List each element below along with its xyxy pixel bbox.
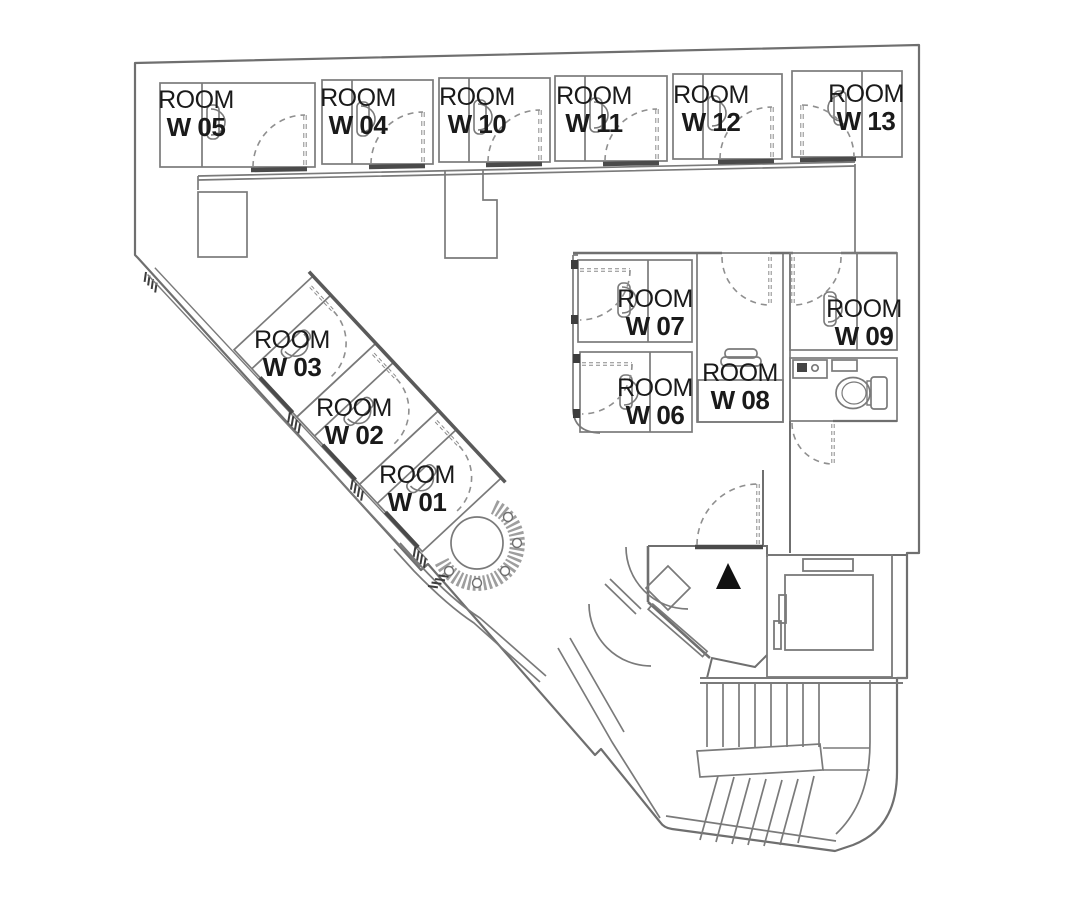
room-label-w06: ROOMW 06 (617, 376, 693, 428)
room-label-w08: ROOMW 08 (702, 361, 778, 413)
elevator-cab (785, 575, 873, 650)
entrance-door-arc-right (589, 604, 651, 666)
top-rooms (160, 71, 902, 167)
elevator-counterweight (803, 559, 853, 571)
shelf-icon (832, 360, 857, 371)
toilet-room (790, 358, 897, 421)
spiral-planter-icon (428, 507, 522, 592)
diagonal-block-front-wall (309, 272, 505, 483)
room-label-w01: ROOMW 01 (379, 463, 455, 515)
corridor-door-bar (605, 579, 641, 614)
stair-landing (697, 744, 823, 777)
upper-corridor-walls (140, 162, 855, 293)
room-label-w13: ROOMW 13 (828, 82, 904, 134)
room-label-w02: ROOMW 02 (316, 396, 392, 448)
toilet-door-arc (792, 423, 833, 464)
room-label-w05: ROOMW 05 (158, 88, 234, 140)
lobby-walls (648, 421, 907, 678)
stair-treads-upper (707, 683, 819, 747)
room-label-w09: ROOMW 09 (826, 297, 902, 349)
toilet-icon (836, 377, 887, 409)
room-label-w12: ROOMW 12 (673, 83, 749, 135)
room-label-w07: ROOMW 07 (617, 287, 693, 339)
room-label-w11: ROOMW 11 (556, 84, 632, 136)
floorplan-canvas: ROOMW 05 ROOMW 04 ROOMW 10 ROOMW 11 ROOM… (0, 0, 1083, 897)
elevator-door-panel (774, 621, 781, 649)
stairs-icon (558, 638, 907, 846)
room-label-w10: ROOMW 10 (439, 85, 515, 137)
room-label-w03: ROOMW 03 (254, 328, 330, 380)
room-label-w04: ROOMW 04 (320, 86, 396, 138)
entrance-triangle-icon (716, 563, 741, 589)
lobby-door-arc (697, 484, 758, 545)
w08-door-arc (722, 257, 770, 305)
elevator-icon (767, 555, 892, 677)
